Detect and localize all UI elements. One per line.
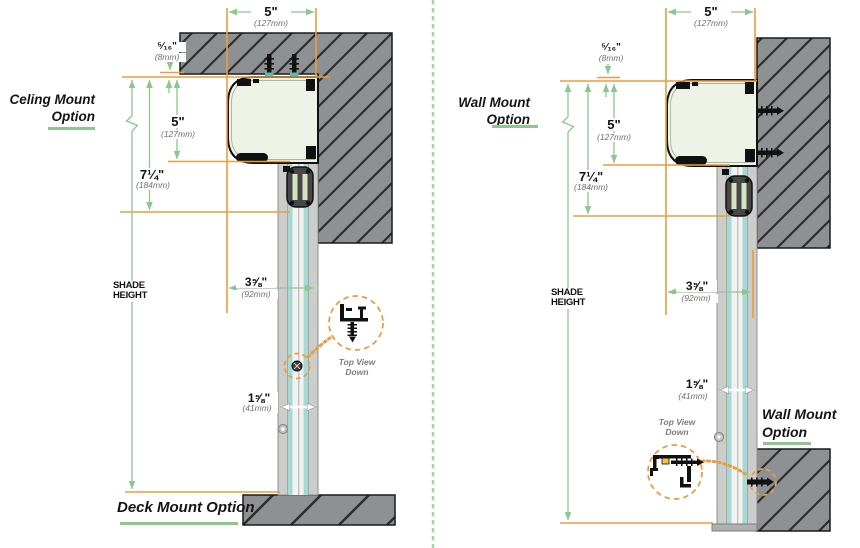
right-title-underline bbox=[492, 125, 538, 128]
right-roller-housing bbox=[667, 80, 757, 175]
right-wall-block bbox=[757, 38, 830, 248]
shade-mounting-diagram: Celing Mount Option 5" (127mm) ⁵⁄₁₆" (8m… bbox=[0, 0, 860, 548]
right-dim-top-width-in: 5" bbox=[691, 5, 731, 18]
right-footer-label: Wall Mount Option bbox=[762, 405, 836, 441]
left-dim-top-width-mm: (127mm) bbox=[246, 19, 296, 28]
right-panel-title: Wall Mount Option bbox=[448, 95, 530, 129]
right-dim-housing-mm: (127mm) bbox=[594, 133, 634, 142]
left-break-symbol bbox=[125, 116, 139, 131]
right-topview-label: Top View Down bbox=[651, 417, 703, 437]
left-footer-label: Deck Mount Option bbox=[117, 500, 255, 515]
left-shade-height-label: SHADE HEIGHT bbox=[113, 281, 153, 302]
left-dim-housing-in: 5" bbox=[159, 115, 197, 128]
left-dim-gap-in: ⁵⁄₁₆" bbox=[148, 42, 186, 52]
left-roller-housing bbox=[228, 77, 318, 172]
right-topview-line2: Down bbox=[651, 427, 703, 437]
right-zipper-detail bbox=[726, 176, 752, 216]
left-topview-line2: Down bbox=[331, 367, 383, 377]
right-break-symbol bbox=[561, 117, 575, 132]
left-dim-gap-mm: (8mm) bbox=[148, 53, 186, 62]
left-dim-top-width-in: 5" bbox=[251, 5, 291, 18]
left-deck-block bbox=[243, 495, 395, 525]
left-dim-header-mm: (184mm) bbox=[134, 181, 172, 190]
left-topview-label: Top View Down bbox=[331, 357, 383, 377]
diagram-canvas bbox=[0, 0, 860, 548]
right-dim-depth-in: 3⅝" bbox=[677, 280, 717, 292]
right-dim-housing-in: 5" bbox=[596, 118, 632, 131]
left-zipper-detail bbox=[287, 167, 313, 207]
right-footer-line2: Option bbox=[762, 423, 836, 441]
right-dim-depth-mm: (92mm) bbox=[674, 294, 718, 303]
left-title-line1: Celing Mount bbox=[6, 92, 95, 109]
left-title-line2: Option bbox=[6, 109, 95, 126]
left-dim-housing-mm: (127mm) bbox=[153, 130, 203, 139]
right-footer-line1: Wall Mount bbox=[762, 405, 836, 423]
right-dim-gap-in: ⁵⁄₁₆" bbox=[592, 43, 630, 53]
left-topview-line1: Top View bbox=[331, 357, 383, 367]
right-lower-wall-block bbox=[756, 449, 830, 531]
left-panel-title: Celing Mount Option bbox=[6, 92, 95, 126]
right-panel-drawing bbox=[560, 8, 830, 531]
left-title-underline bbox=[48, 127, 95, 130]
left-panel-drawing bbox=[120, 8, 395, 525]
right-dim-track-mm: (41mm) bbox=[672, 392, 714, 401]
right-shade-height-label: SHADE HEIGHT bbox=[551, 288, 591, 309]
right-topview-line1: Top View bbox=[651, 417, 703, 427]
right-title-line1: Wall Mount bbox=[448, 95, 530, 112]
right-channel-fasteners bbox=[715, 433, 724, 442]
left-footer-underline bbox=[120, 522, 238, 525]
left-dim-depth-in: 3⅝" bbox=[236, 276, 276, 288]
right-dim-gap-mm: (8mm) bbox=[592, 54, 630, 63]
left-dim-depth-mm: (92mm) bbox=[234, 290, 278, 299]
right-dim-top-width-mm: (127mm) bbox=[686, 19, 736, 28]
right-dim-track-in: 1⅝" bbox=[678, 378, 716, 390]
right-footer-underline bbox=[763, 442, 811, 445]
left-dim-track-mm: (41mm) bbox=[236, 404, 278, 413]
right-dim-header-mm: (184mm) bbox=[572, 183, 610, 192]
right-shade-channel bbox=[712, 166, 757, 531]
